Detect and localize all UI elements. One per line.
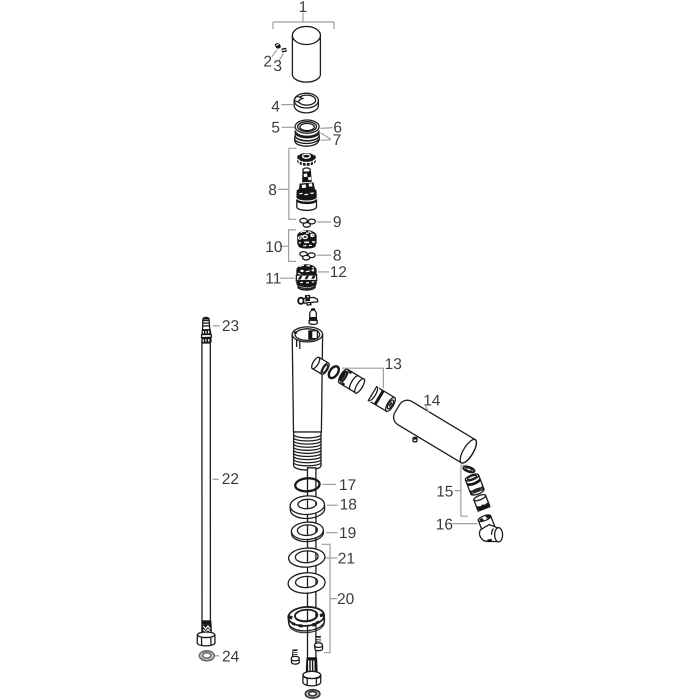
svg-text:13: 13 (385, 356, 402, 373)
svg-text:22: 22 (222, 471, 239, 488)
svg-text:7: 7 (333, 132, 342, 149)
svg-text:4: 4 (271, 98, 280, 115)
svg-text:19: 19 (339, 525, 356, 542)
svg-text:21: 21 (338, 551, 355, 568)
svg-text:10: 10 (265, 239, 283, 256)
svg-text:2: 2 (263, 54, 272, 71)
svg-text:20: 20 (337, 591, 355, 608)
svg-text:15: 15 (436, 483, 453, 500)
svg-text:3: 3 (273, 58, 282, 75)
svg-text:11: 11 (265, 271, 281, 288)
svg-text:18: 18 (340, 496, 357, 513)
svg-text:5: 5 (271, 120, 280, 137)
svg-text:8: 8 (333, 247, 342, 264)
svg-text:16: 16 (436, 517, 453, 534)
svg-text:17: 17 (339, 477, 356, 494)
svg-text:24: 24 (222, 648, 240, 665)
svg-text:9: 9 (333, 214, 342, 231)
svg-text:12: 12 (330, 264, 347, 281)
svg-text:1: 1 (299, 0, 308, 16)
svg-text:8: 8 (268, 182, 277, 199)
svg-text:23: 23 (222, 318, 239, 335)
